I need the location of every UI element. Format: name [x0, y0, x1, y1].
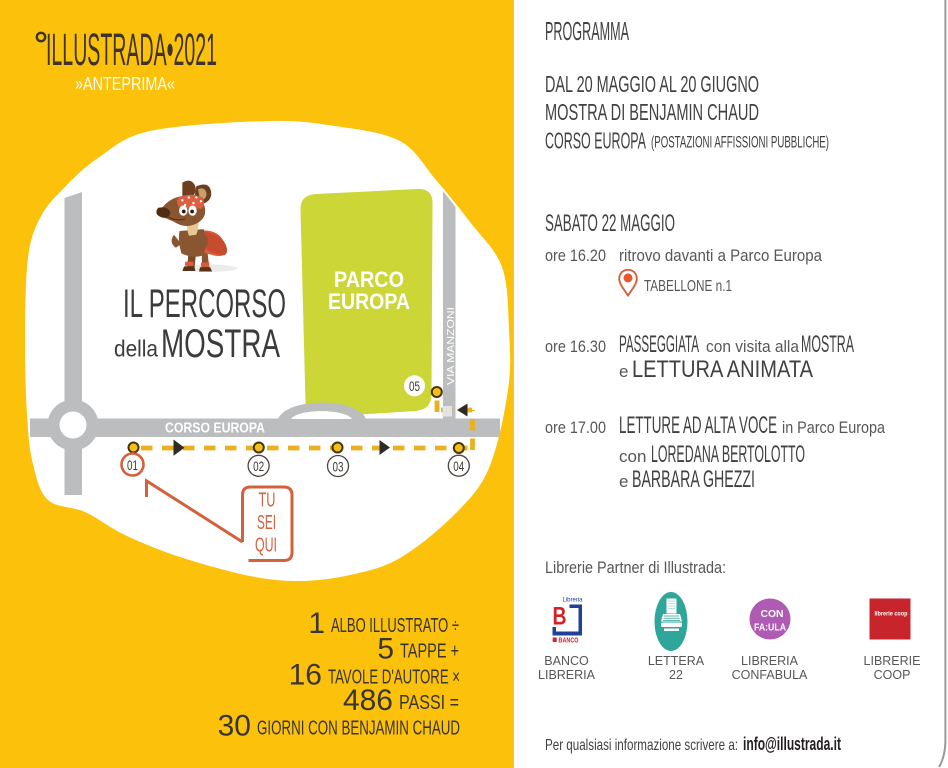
svg-text:1: 1 [308, 607, 325, 640]
svg-text:con visita alla: con visita alla [706, 337, 799, 356]
svg-text:MOSTRA: MOSTRA [801, 331, 854, 358]
svg-text:LETTURA ANIMATA: LETTURA ANIMATA [632, 356, 813, 383]
svg-text:e: e [619, 362, 628, 381]
svg-text:ore 17.00: ore 17.00 [545, 418, 606, 437]
svg-text:Per qualsiasi informazione scr: Per qualsiasi informazione scrivere a: [545, 737, 738, 754]
svg-text:TABELLONE n.1: TABELLONE n.1 [644, 278, 732, 295]
svg-text:486: 486 [343, 684, 393, 717]
svg-text:22: 22 [669, 668, 683, 682]
svg-text:librerie coop: librerie coop [875, 612, 908, 618]
svg-text:BARBARA GHEZZI: BARBARA GHEZZI [632, 466, 755, 493]
svg-text:»ANTEPRIMA«: »ANTEPRIMA« [75, 74, 175, 94]
svg-text:info@illustrada.it: info@illustrada.it [743, 734, 841, 754]
svg-text:PASSEGGIATA: PASSEGGIATA [619, 331, 699, 358]
svg-text:SEI: SEI [257, 512, 276, 534]
svg-text:VIA MANZONI: VIA MANZONI [446, 307, 457, 385]
svg-text:05: 05 [409, 378, 420, 394]
svg-text:LIBRERIA: LIBRERIA [741, 654, 799, 668]
svg-text:LIBRERIE: LIBRERIE [864, 654, 921, 668]
svg-text:ore 16.20: ore 16.20 [545, 246, 606, 265]
svg-text:TU: TU [259, 490, 276, 512]
svg-text:(POSTAZIONI AFFISSIONI PUBBLIC: (POSTAZIONI AFFISSIONI PUBBLICHE) [651, 134, 829, 152]
svg-text:CORSO EUROPA: CORSO EUROPA [545, 128, 646, 154]
svg-text:LETTERA: LETTERA [648, 654, 705, 668]
svg-text:PASSI =: PASSI = [399, 692, 459, 714]
svg-text:TAPPE +: TAPPE + [400, 641, 459, 663]
svg-text:IL PERCORSO: IL PERCORSO [123, 282, 286, 326]
svg-text:MOSTRA DI BENJAMIN CHAUD: MOSTRA DI BENJAMIN CHAUD [545, 99, 759, 125]
svg-text:03: 03 [333, 459, 344, 475]
svg-text:ore 16.30: ore 16.30 [545, 337, 606, 356]
svg-text:02: 02 [253, 458, 264, 474]
svg-text:LIBRERIA: LIBRERIA [538, 668, 596, 682]
svg-text:ritrovo davanti a Parco Europa: ritrovo davanti a Parco Europa [619, 246, 822, 265]
svg-text:CONFABULA: CONFABULA [732, 668, 808, 682]
svg-text:5: 5 [377, 633, 394, 666]
svg-text:PROGRAMMA: PROGRAMMA [545, 16, 629, 46]
svg-text:LETTURE AD ALTA VOCE: LETTURE AD ALTA VOCE [619, 412, 777, 439]
svg-text:QUI: QUI [255, 535, 277, 557]
svg-text:16: 16 [289, 659, 322, 692]
svg-text:DAL 20 MAGGIO AL 20 GIUGNO: DAL 20 MAGGIO AL 20 GIUGNO [545, 71, 759, 97]
svg-text:30: 30 [218, 710, 251, 743]
svg-text:BANCO: BANCO [544, 654, 589, 668]
svg-text:della: della [114, 336, 158, 362]
svg-text:e: e [619, 472, 628, 491]
svg-text:MOSTRA: MOSTRA [161, 322, 280, 366]
svg-text:GIORNI CON BENJAMIN CHAUD: GIORNI CON BENJAMIN CHAUD [257, 718, 460, 740]
svg-text:SABATO 22 MAGGIO: SABATO 22 MAGGIO [545, 210, 675, 237]
svg-text:Librerie Partner di Illustrada: Librerie Partner di Illustrada: [545, 558, 726, 577]
svg-text:in Parco Europa: in Parco Europa [782, 418, 885, 437]
svg-text:CON: CON [761, 608, 784, 620]
svg-text:ILLUSTRADA•2021: ILLUSTRADA•2021 [46, 24, 217, 75]
svg-text:B: B [553, 603, 567, 631]
svg-text:04: 04 [453, 458, 464, 474]
svg-text:EUROPA: EUROPA [328, 289, 410, 314]
svg-text:FA:ULA: FA:ULA [754, 622, 786, 634]
svg-text:CORSO EUROPA: CORSO EUROPA [165, 421, 265, 437]
svg-text:con: con [619, 447, 646, 466]
svg-text:BANCO: BANCO [559, 638, 579, 645]
svg-text:ALBO ILLUSTRATO ÷: ALBO ILLUSTRATO ÷ [331, 615, 459, 637]
svg-text:LOREDANA BERTOLOTTO: LOREDANA BERTOLOTTO [651, 441, 805, 468]
svg-text:COOP: COOP [874, 668, 911, 682]
svg-text:01: 01 [127, 457, 138, 473]
